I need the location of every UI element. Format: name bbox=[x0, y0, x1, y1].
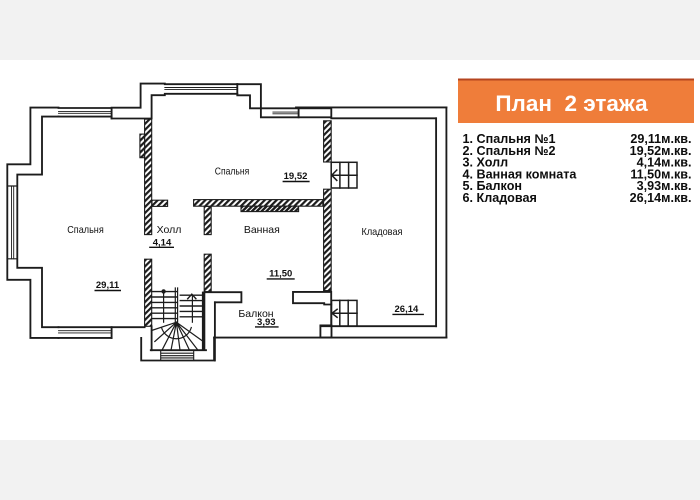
svg-text:6. Кладовая: 6. Кладовая bbox=[463, 191, 537, 205]
svg-text:Кладовая: Кладовая bbox=[362, 226, 403, 238]
svg-text:Холл: Холл bbox=[157, 224, 182, 236]
svg-text:29,11: 29,11 bbox=[96, 280, 120, 291]
svg-text:26,14м.кв.: 26,14м.кв. bbox=[630, 191, 692, 205]
svg-text:Спальня: Спальня bbox=[67, 224, 104, 236]
svg-text:План 2 этажа: План 2 этажа bbox=[495, 91, 648, 116]
svg-text:11,50: 11,50 bbox=[269, 268, 292, 279]
svg-text:26,14: 26,14 bbox=[395, 304, 419, 315]
svg-text:Спальня: Спальня bbox=[215, 166, 250, 178]
svg-text:19,52: 19,52 bbox=[284, 171, 308, 182]
svg-text:Ванная: Ванная bbox=[244, 224, 280, 236]
